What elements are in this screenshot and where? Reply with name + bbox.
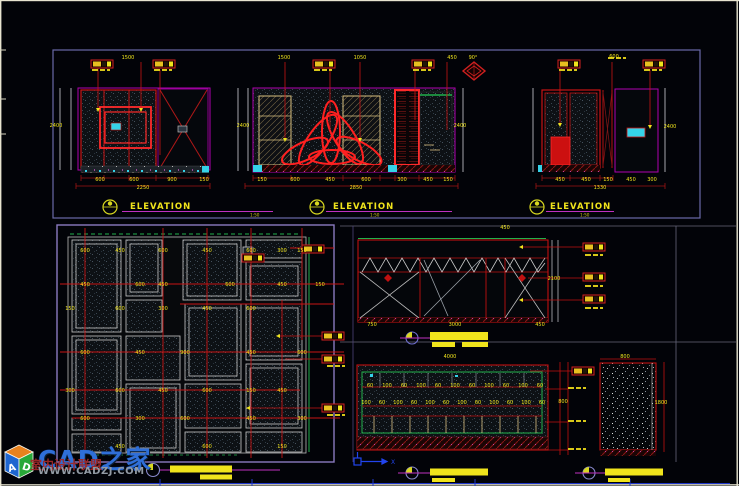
leader-label-box: [313, 60, 335, 68]
dim-label: 450: [581, 177, 591, 183]
dim-label: 4000: [444, 354, 457, 360]
dim-label: 600: [202, 388, 212, 394]
dim-label: 450: [277, 388, 287, 394]
dim-label: 600: [180, 416, 190, 422]
dim-label: 450: [202, 248, 212, 254]
elevation-2-symbol: [310, 200, 324, 214]
dim-label: 2400: [664, 124, 677, 130]
dim-label: 2400: [237, 123, 250, 129]
caption-dashes: [413, 69, 431, 71]
detail-b-drawing: X: [354, 362, 572, 482]
dim-label: 2400: [454, 123, 467, 129]
leader-label-box: [322, 404, 344, 412]
leader-label-box: [643, 60, 665, 68]
elevation-scale-2: 1:50: [370, 213, 380, 218]
dim-label: 60: [367, 383, 373, 389]
dim-label: 150: [297, 248, 307, 254]
leader-label-box: [412, 60, 434, 68]
dim-label: 60: [401, 383, 407, 389]
elevation-3-drawing: [533, 62, 665, 189]
dim-label: 450: [202, 306, 212, 312]
dim-label: 600: [297, 350, 307, 356]
dim-label: 100: [361, 400, 371, 406]
dim-label: 600: [290, 177, 300, 183]
caption-dashes: [154, 69, 172, 71]
dim-label: 60: [379, 400, 385, 406]
detail-a-drawing: [358, 239, 583, 348]
dim-label: 300: [135, 416, 145, 422]
dim-label: 100: [457, 400, 467, 406]
ucs-axis-icon: [354, 452, 387, 465]
leader-label-box: [242, 254, 264, 262]
elevation-title-2: ELEVATION: [333, 202, 394, 212]
dim-label: 2850: [350, 185, 363, 191]
leader-label-box: [583, 243, 605, 251]
caption-dashes: [585, 307, 603, 309]
dim-label: 1050: [354, 55, 367, 61]
plan-title: [147, 464, 281, 480]
dim-label: 600: [95, 177, 105, 183]
dim-label: 750: [367, 322, 377, 328]
dim-label: 60: [443, 400, 449, 406]
dim-label: 450: [158, 282, 168, 288]
dim-label: 300: [158, 306, 168, 312]
dim-label: 60: [539, 400, 545, 406]
diamond-ornament: [463, 62, 485, 80]
cad-canvas: 90°: [0, 0, 739, 486]
dim-label: 900: [167, 177, 177, 183]
dim-label: 2250: [137, 185, 150, 191]
leader-label-box: [583, 273, 605, 281]
leader-label-box: [322, 332, 344, 340]
leader-label-box: [558, 60, 580, 68]
dim-label: 450: [626, 177, 636, 183]
detail-c-title: [575, 467, 663, 482]
dim-label: 2400: [50, 123, 63, 129]
dim-label: 450: [423, 177, 433, 183]
dim-label: 600: [80, 248, 90, 254]
leader-label-box: [322, 355, 344, 363]
dim-label: 600: [202, 444, 212, 450]
dim-label: 600: [609, 54, 619, 60]
elevation-3-symbol: [530, 200, 544, 214]
dim-label: 300: [297, 416, 307, 422]
dim-label: 60: [411, 400, 417, 406]
elevation-title-1: ELEVATION: [130, 202, 191, 212]
dim-label: 450: [246, 350, 256, 356]
dim-label: 150: [443, 177, 453, 183]
elevation-titles: ELEVATION 1:50 ELEVATION 1:50 ELEVATION …: [103, 200, 614, 218]
elevation-1-drawing: [60, 62, 248, 189]
dim-label: 300: [647, 177, 657, 183]
elevation-2-drawing: 90°: [245, 55, 485, 189]
elevation-scale-1: 1:50: [250, 213, 260, 218]
dim-label: 450: [80, 282, 90, 288]
dim-label: 450: [115, 248, 125, 254]
dim-label: 600: [80, 350, 90, 356]
dim-label: 450: [555, 177, 565, 183]
caption-dashes: [92, 69, 110, 71]
dim-label: 100: [518, 383, 528, 389]
dim-label: 60: [507, 400, 513, 406]
dim-label: 600: [80, 416, 90, 422]
caption-dashes: [644, 69, 662, 71]
dim-label: 600: [361, 177, 371, 183]
dim-label: 600: [225, 282, 235, 288]
dim-label: 600: [135, 282, 145, 288]
detail-c-drawing: [575, 359, 664, 482]
dim-label: 100: [425, 400, 435, 406]
dim-label: 1800: [655, 400, 668, 406]
dim-label: 600: [115, 306, 125, 312]
dim-label: 100: [416, 383, 426, 389]
dim-label: 450: [246, 416, 256, 422]
dim-label: 1330: [594, 185, 607, 191]
elevation-scale-3: 1:50: [580, 213, 590, 218]
dim-label: 600: [246, 306, 256, 312]
dim-label: 100: [382, 383, 392, 389]
dim-label: 60: [475, 400, 481, 406]
dim-label: 450: [115, 444, 125, 450]
dim-label: 150: [246, 388, 256, 394]
dim-label: 60: [435, 383, 441, 389]
elevations-section: 90°: [53, 50, 700, 218]
dim-label: 450: [447, 55, 457, 61]
dim-label: 100: [393, 400, 403, 406]
dim-label: 450: [277, 282, 287, 288]
caption-dashes: [314, 69, 332, 71]
dim-label: 450: [135, 350, 145, 356]
dim-label: 600: [115, 388, 125, 394]
dim-label: 450: [158, 388, 168, 394]
caption-dashes: [568, 420, 586, 422]
dim-label: 300: [277, 248, 287, 254]
dim-label: 450: [500, 225, 510, 231]
dim-label: 150: [603, 177, 613, 183]
ucs-x-label: X: [391, 459, 395, 466]
dim-label: 100: [521, 400, 531, 406]
dim-label: 150: [199, 177, 209, 183]
dim-label: 900: [180, 350, 190, 356]
dim-label: 600: [158, 248, 168, 254]
dim-label: 3000: [449, 322, 462, 328]
dim-label: 800: [620, 354, 630, 360]
caption-dashes: [559, 69, 577, 71]
dim-label: 800: [558, 399, 568, 405]
dim-label: 600: [246, 248, 256, 254]
dim-label: 450: [535, 322, 545, 328]
caption-dashes: [568, 387, 586, 389]
leader-label-box: [91, 60, 113, 68]
dim-label: 1500: [122, 55, 135, 61]
dim-label: 300: [397, 177, 407, 183]
dim-label: 150: [315, 282, 325, 288]
dim-label: 150: [257, 177, 267, 183]
dim-label: 60: [469, 383, 475, 389]
leader-label-box: [153, 60, 175, 68]
angle-label: 90°: [469, 55, 478, 61]
dim-label: 60: [503, 383, 509, 389]
dim-label: 150: [277, 444, 287, 450]
dim-label: 1500: [278, 55, 291, 61]
cad-drawing-sheet: 90°: [0, 0, 739, 486]
caption-dashes: [585, 285, 603, 287]
detail-a-title: [400, 332, 488, 347]
dim-label: 300: [65, 388, 75, 394]
dim-label: 600: [129, 177, 139, 183]
dim-label: 100: [484, 383, 494, 389]
dim-label: 100: [450, 383, 460, 389]
dim-label: 60: [537, 383, 543, 389]
dim-label: 450: [325, 177, 335, 183]
dim-label: 2100: [548, 276, 561, 282]
elevation-1-symbol: [103, 200, 117, 214]
leader-label-box: [583, 295, 605, 303]
caption-dashes: [568, 448, 586, 450]
dim-label: 100: [489, 400, 499, 406]
caption-dashes: [585, 254, 603, 256]
dim-label: 150: [65, 306, 75, 312]
elevation-title-3: ELEVATION: [550, 202, 611, 212]
caption-dashes: [327, 365, 345, 367]
leader-label-box: [572, 367, 594, 375]
caption-dashes: [327, 414, 345, 416]
